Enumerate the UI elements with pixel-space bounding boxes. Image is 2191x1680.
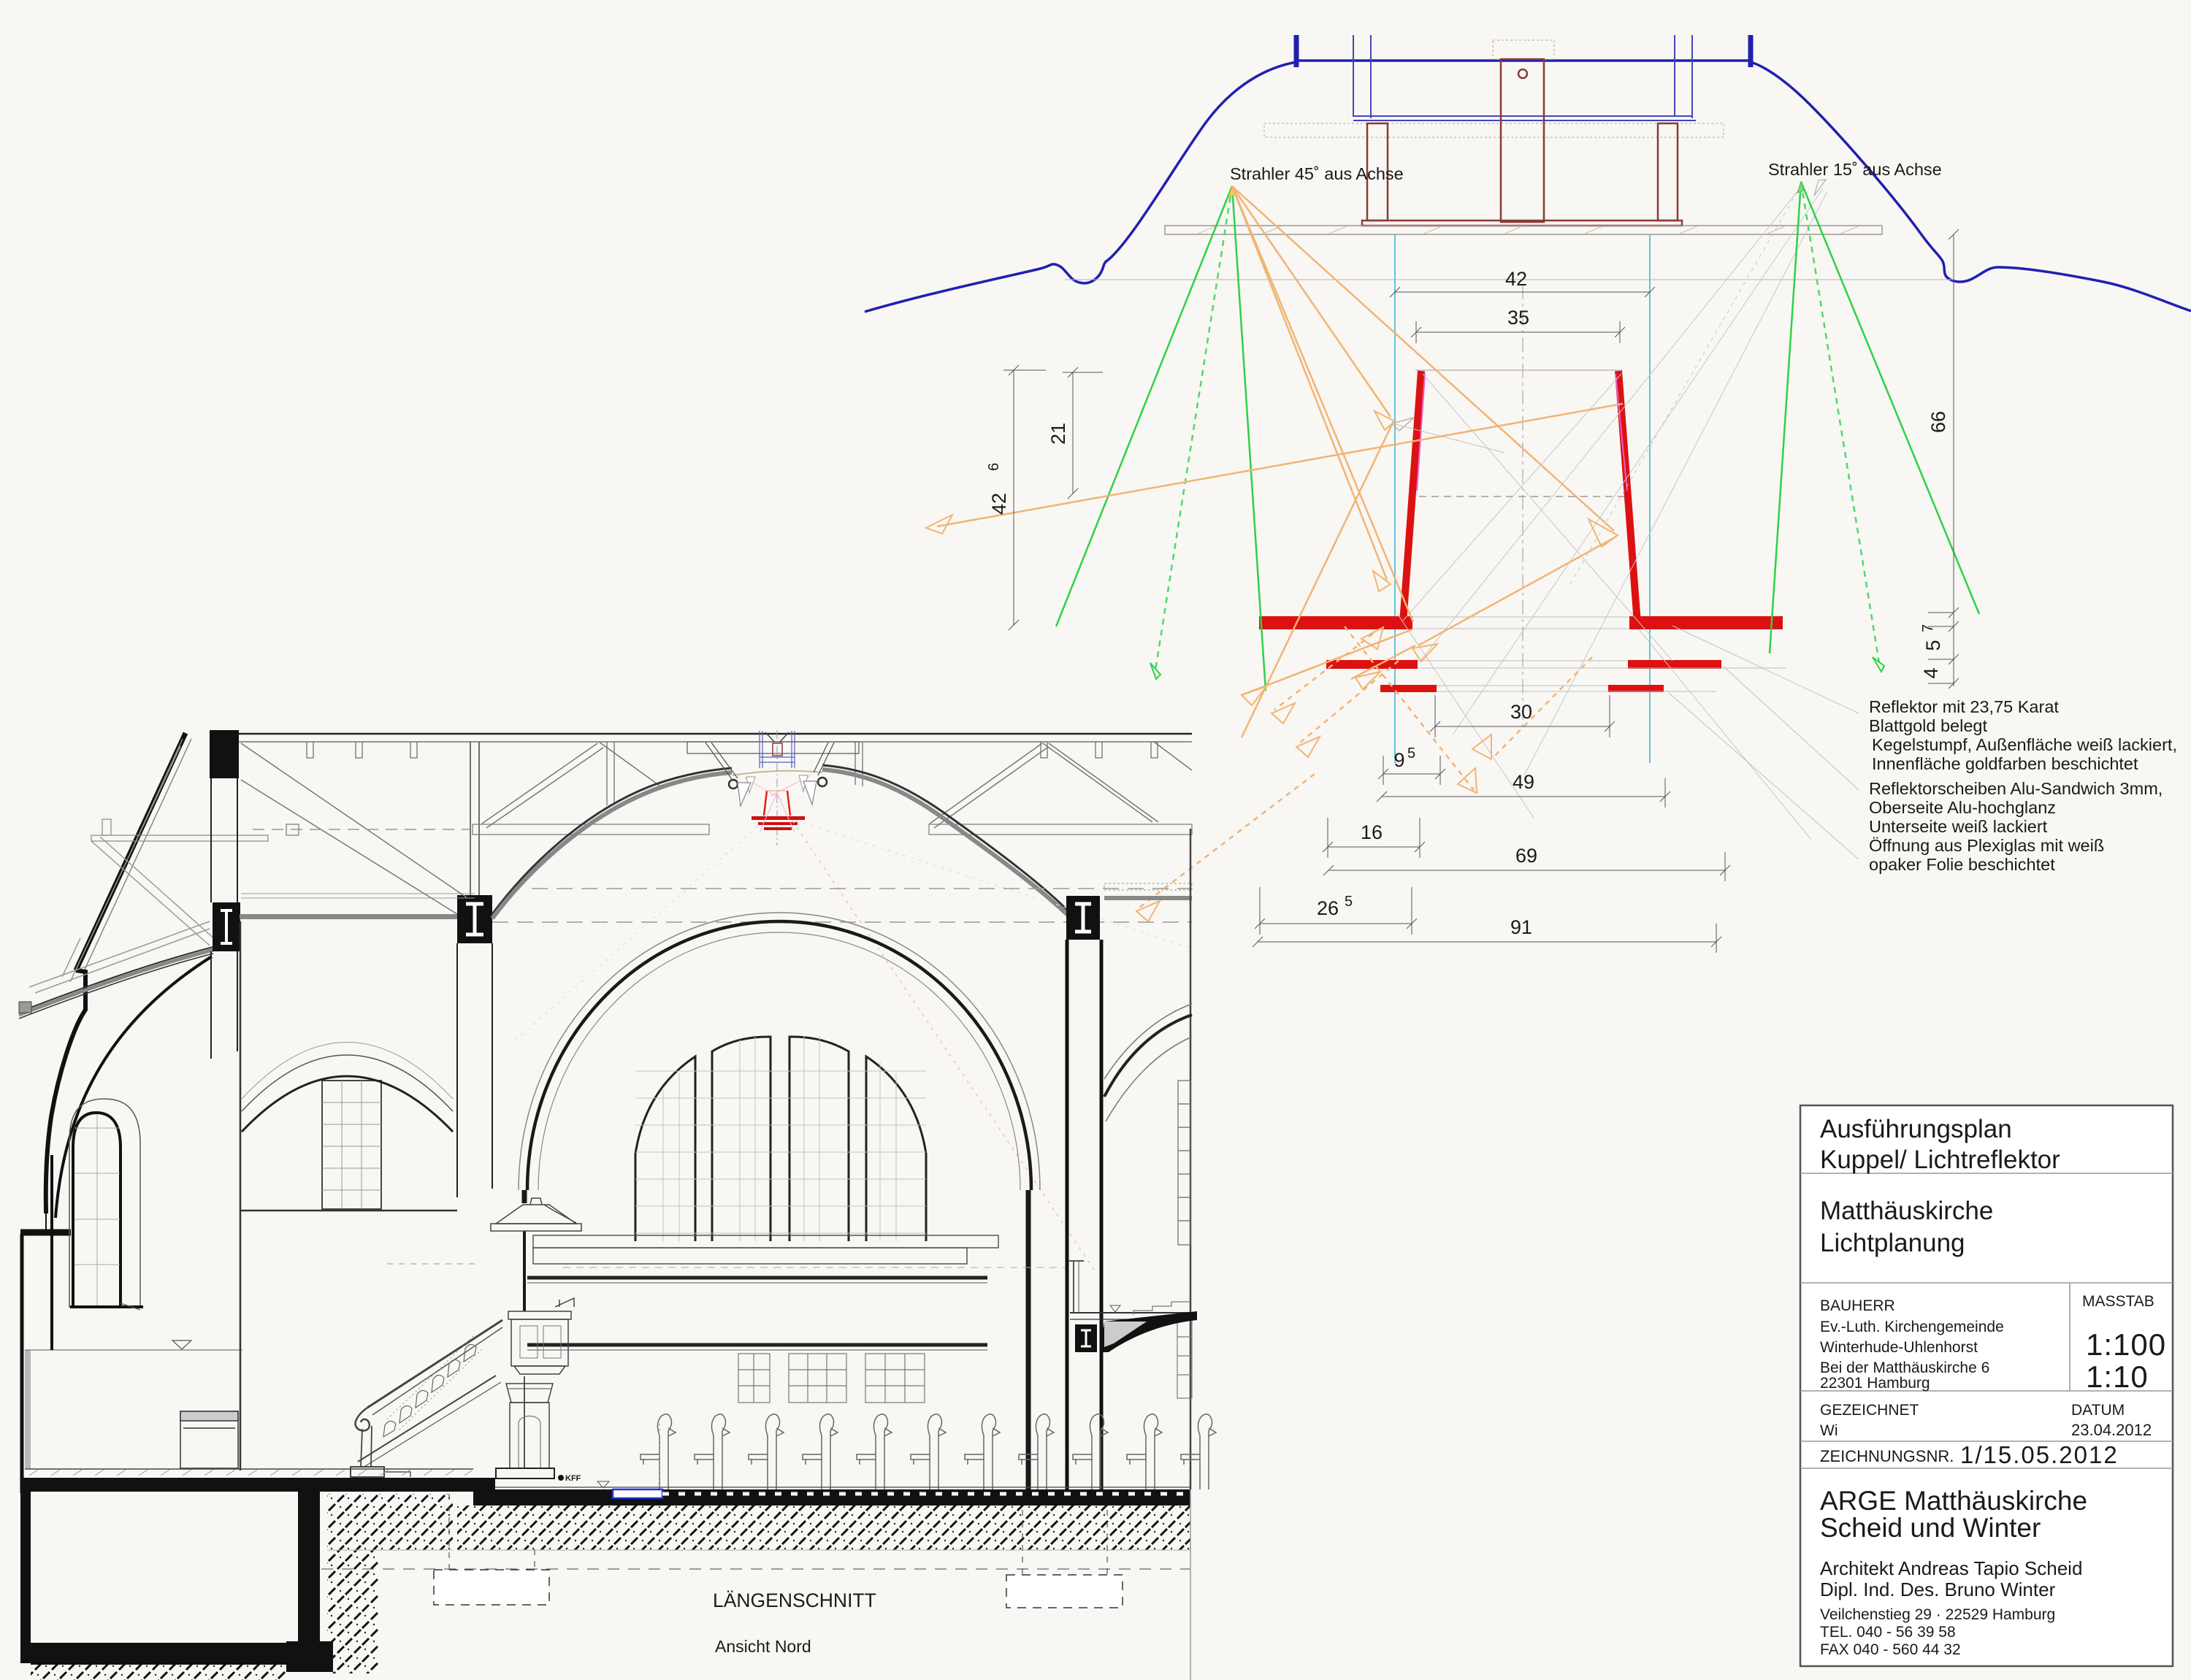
svg-text:MASSTAB: MASSTAB	[2082, 1293, 2154, 1310]
svg-text:91: 91	[1510, 916, 1532, 938]
svg-text:Bei der Matthäuskirche 6: Bei der Matthäuskirche 6	[1820, 1359, 1989, 1376]
svg-text:35: 35	[1507, 307, 1529, 329]
svg-text:Öffnung aus Plexiglas mit weiß: Öffnung aus Plexiglas mit weiß	[1869, 836, 2104, 855]
svg-text:KFF: KFF	[565, 1474, 581, 1483]
svg-text:30: 30	[1510, 701, 1532, 723]
svg-text:1/15.05.2012: 1/15.05.2012	[1960, 1441, 2119, 1468]
svg-text:Unterseite weiß lackiert: Unterseite weiß lackiert	[1869, 817, 2048, 836]
svg-text:FAX 040 - 560 44 32: FAX 040 - 560 44 32	[1820, 1641, 1961, 1658]
svg-text:Architekt Andreas Tapio Scheid: Architekt Andreas Tapio Scheid	[1820, 1557, 2082, 1579]
svg-text:16: 16	[1361, 821, 1383, 843]
svg-text:26: 26	[1317, 897, 1339, 919]
svg-text:23.04.2012: 23.04.2012	[2071, 1421, 2152, 1439]
svg-text:GEZEICHNET: GEZEICHNET	[1820, 1402, 1919, 1419]
svg-text:Kuppel/ Lichtreflektor: Kuppel/ Lichtreflektor	[1820, 1146, 2060, 1174]
svg-text:42: 42	[1505, 268, 1527, 290]
svg-text:Scheid und Winter: Scheid und Winter	[1820, 1513, 2041, 1543]
svg-text:7: 7	[1920, 624, 1936, 632]
svg-text:Ausführungsplan: Ausführungsplan	[1820, 1115, 2012, 1143]
svg-text:21: 21	[1047, 423, 1069, 445]
svg-text:22301 Hamburg: 22301 Hamburg	[1820, 1375, 1930, 1392]
svg-text:Strahler 45˚ aus Achse: Strahler 45˚ aus Achse	[1230, 164, 1404, 183]
svg-text:Blattgold belegt: Blattgold belegt	[1869, 716, 1987, 735]
svg-text:Kegelstumpf, Außenfläche weiß: Kegelstumpf, Außenfläche weiß lackiert,	[1872, 735, 2177, 754]
svg-text:4: 4	[1920, 667, 1942, 678]
svg-text:Reflektorscheiben Alu-Sandwich: Reflektorscheiben Alu-Sandwich 3mm,	[1869, 779, 2163, 798]
svg-text:Lichtplanung: Lichtplanung	[1820, 1229, 1965, 1257]
svg-text:1:100: 1:100	[2086, 1327, 2166, 1362]
svg-text:opaker Folie beschichtet: opaker Folie beschichtet	[1869, 855, 2055, 874]
svg-text:Winterhude-Uhlenhorst: Winterhude-Uhlenhorst	[1820, 1339, 1978, 1356]
svg-text:9: 9	[1393, 749, 1404, 771]
svg-text:5: 5	[1345, 894, 1353, 910]
svg-text:49: 49	[1513, 771, 1534, 793]
svg-text:Oberseite Alu-hochglanz: Oberseite Alu-hochglanz	[1869, 798, 2056, 817]
svg-text:66: 66	[1927, 411, 1949, 433]
svg-text:Wi: Wi	[1820, 1422, 1838, 1439]
svg-text:Ev.-Luth. Kirchengemeinde: Ev.-Luth. Kirchengemeinde	[1820, 1319, 2004, 1335]
svg-text:1:10: 1:10	[2086, 1359, 2149, 1394]
svg-text:Dipl. Ind. Des. Bruno Winter: Dipl. Ind. Des. Bruno Winter	[1820, 1579, 2056, 1600]
svg-text:5: 5	[1407, 745, 1415, 762]
svg-text:LÄNGENSCHNITT: LÄNGENSCHNITT	[713, 1589, 876, 1611]
svg-text:Ansicht Nord: Ansicht Nord	[715, 1637, 811, 1656]
svg-text:69: 69	[1515, 845, 1537, 867]
svg-text:TEL. 040 - 56 39 58: TEL. 040 - 56 39 58	[1820, 1624, 1956, 1641]
svg-text:Veilchenstieg 29 · 22529 Hambu: Veilchenstieg 29 · 22529 Hamburg	[1820, 1606, 2055, 1623]
svg-text:ZEICHNUNGSNR.: ZEICHNUNGSNR.	[1820, 1447, 1954, 1465]
svg-text:DATUM: DATUM	[2071, 1402, 2125, 1419]
svg-text:Matthäuskirche: Matthäuskirche	[1820, 1197, 1993, 1225]
svg-text:Reflektor mit 23,75 Karat: Reflektor mit 23,75 Karat	[1869, 697, 2059, 716]
svg-text:Innenfläche goldfarben beschic: Innenfläche goldfarben beschichtet	[1872, 754, 2138, 773]
svg-text:42: 42	[988, 493, 1010, 515]
svg-text:5: 5	[1922, 640, 1944, 651]
svg-text:Strahler 15˚ aus Achse: Strahler 15˚ aus Achse	[1768, 160, 1942, 179]
svg-text:6: 6	[986, 463, 1002, 471]
svg-text:BAUHERR: BAUHERR	[1820, 1297, 1895, 1314]
svg-text:ARGE Matthäuskirche: ARGE Matthäuskirche	[1820, 1486, 2087, 1516]
